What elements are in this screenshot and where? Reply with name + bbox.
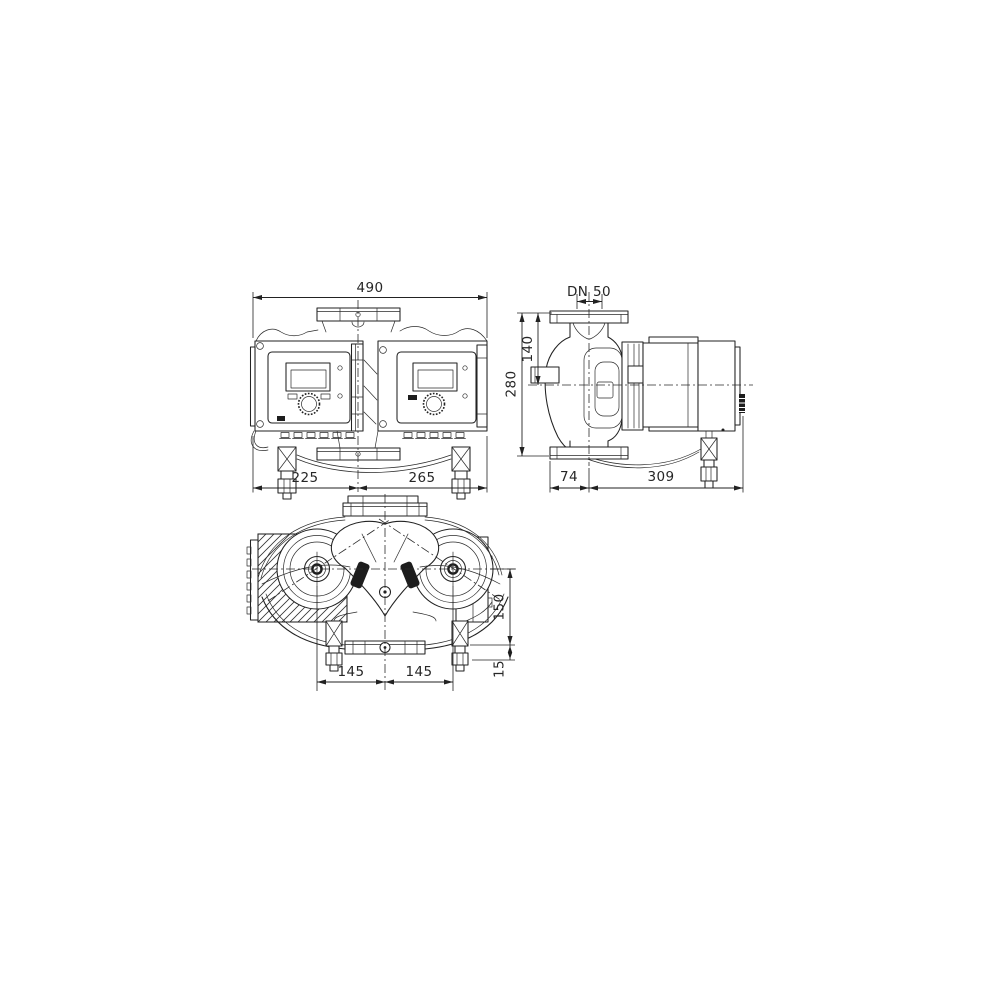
module-left-edge-strip xyxy=(251,347,256,426)
dim-label-15: 15 xyxy=(492,660,508,678)
button-left xyxy=(408,395,417,400)
side-view: DN 50 140 280 74 309 xyxy=(504,284,754,493)
dim-label-225: 225 xyxy=(292,470,319,486)
pump-dimensional-drawing: 490 225 265 xyxy=(0,0,1000,1000)
dim-label-490: 490 xyxy=(357,280,384,296)
front-view: 490 225 265 xyxy=(251,280,488,499)
cable-plug-motor xyxy=(701,431,717,488)
casting-contour-right xyxy=(400,327,487,342)
dim-label-150: 150 xyxy=(492,594,508,621)
cable-gland-row-right xyxy=(403,433,466,439)
pump-housing-side xyxy=(531,337,622,450)
cable xyxy=(413,612,436,621)
dim-label-74: 74 xyxy=(560,469,578,485)
cable-gland-row-left xyxy=(280,433,356,439)
dim-label-280: 280 xyxy=(504,371,520,398)
cable xyxy=(254,431,268,448)
front-bottom-flange xyxy=(317,431,400,460)
front-top-flange xyxy=(317,308,400,327)
cable-plug-right xyxy=(452,447,470,499)
dim-label-265: 265 xyxy=(409,470,436,486)
control-module-left xyxy=(251,341,364,431)
dimension-280: 280 xyxy=(504,313,550,456)
dim-label-145-left: 145 xyxy=(338,664,365,680)
status-tab xyxy=(277,416,285,421)
electronics-box-side xyxy=(698,341,745,432)
plan-view: 145 145 150 15 xyxy=(247,494,518,691)
casting-contour-left xyxy=(256,329,318,341)
dim-label-145-right: 145 xyxy=(406,664,433,680)
module-hinge-strip xyxy=(477,345,487,427)
dim-label-dn50: DN 50 xyxy=(567,284,611,300)
control-module-right xyxy=(378,341,487,431)
dim-label-309: 309 xyxy=(648,469,675,485)
motor-side xyxy=(622,337,698,431)
technical-drawing-svg: 490 225 265 xyxy=(0,0,1000,1000)
module-hinge-strip xyxy=(352,344,364,431)
cable-plug-plan-right xyxy=(452,621,468,671)
